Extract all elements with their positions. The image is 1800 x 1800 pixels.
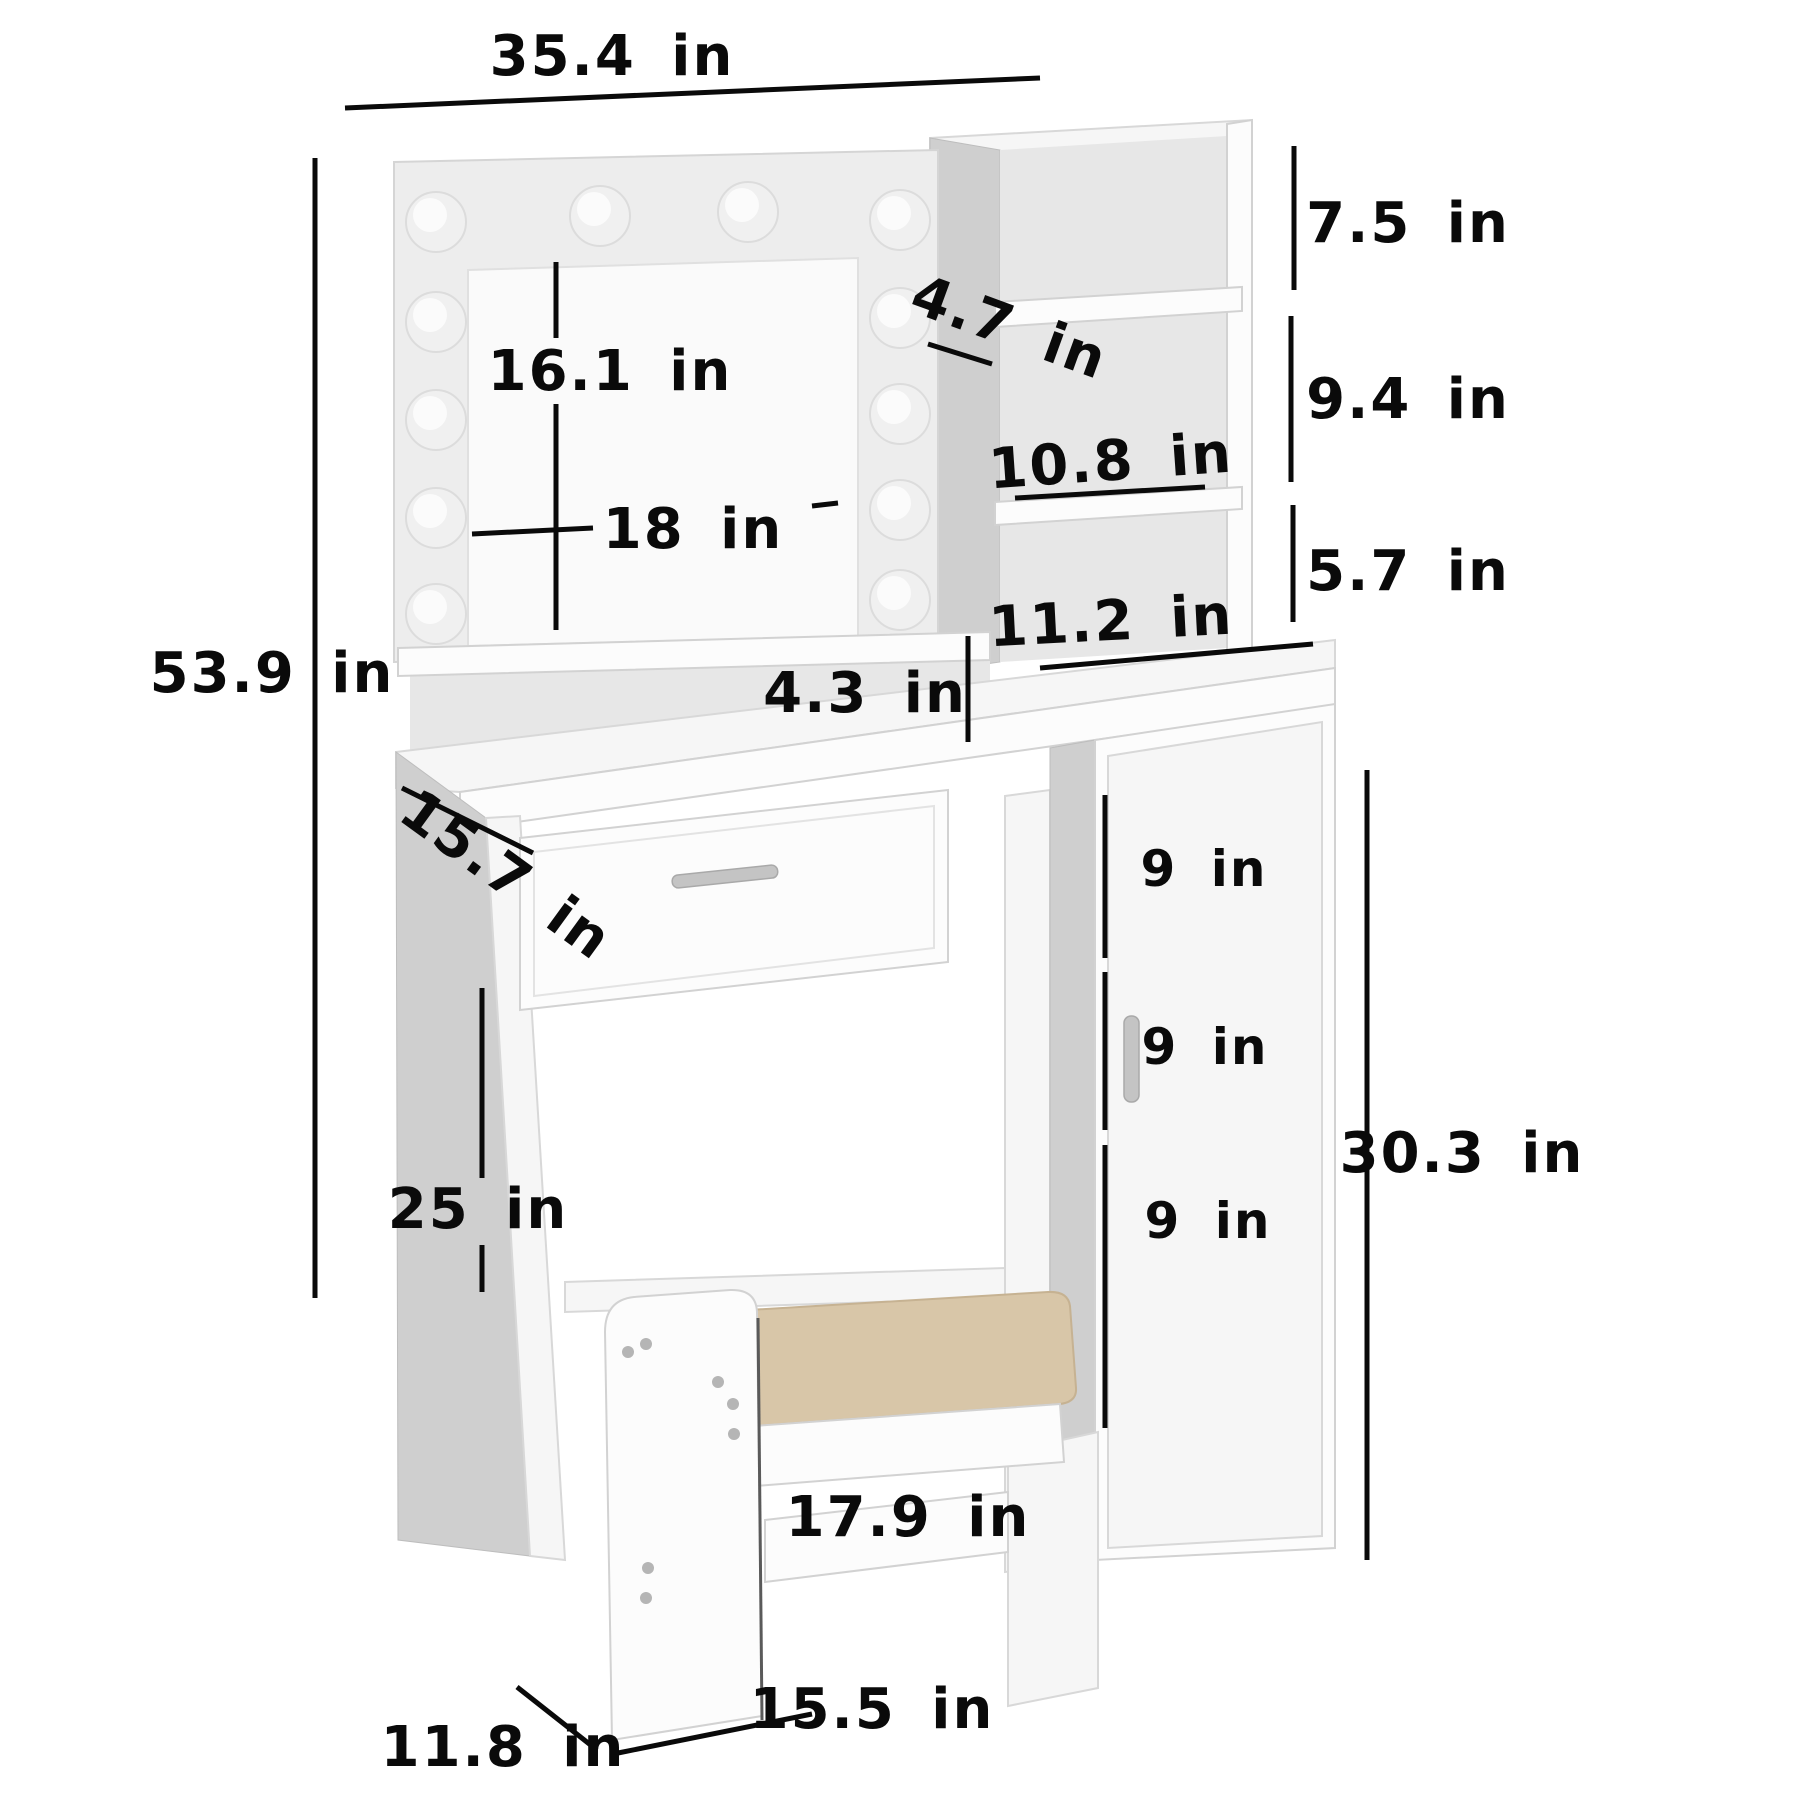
light-bulb-icon bbox=[406, 488, 466, 548]
lighted-mirror bbox=[394, 150, 938, 662]
light-bulb-icon bbox=[406, 390, 466, 450]
desktop-shelf-height-label: 4.3 in bbox=[763, 661, 967, 726]
light-bulb-icon bbox=[870, 570, 930, 630]
dim-line-mirror-width-dash bbox=[812, 503, 838, 506]
overall-height-label: 53.9 in bbox=[150, 641, 395, 706]
mirror-glass bbox=[468, 258, 858, 646]
stool-seat-width-label: 17.9 in bbox=[786, 1485, 1031, 1550]
light-bulb-icon bbox=[718, 182, 778, 242]
hutch-left-wall bbox=[930, 138, 1000, 672]
light-bulb-icon bbox=[870, 190, 930, 250]
cabinet-door-handle bbox=[1124, 1016, 1139, 1102]
mirror-height-label: 16.1 in bbox=[488, 339, 733, 404]
upper-cubby-height-label: 7.5 in bbox=[1306, 191, 1510, 256]
knee-space-height-label: 25 in bbox=[388, 1177, 569, 1242]
cabinet-top-width-label: 11.2 in bbox=[987, 583, 1235, 661]
stool-base-depth-label: 11.8 in bbox=[381, 1715, 626, 1780]
diagram-canvas: 35.4 in 53.9 in 16.1 in 18 in 4.7 in 7.5… bbox=[0, 0, 1800, 1800]
lower-cubby-height-label: 5.7 in bbox=[1306, 539, 1510, 604]
light-bulb-icon bbox=[406, 292, 466, 352]
light-bulb-icon bbox=[870, 384, 930, 444]
product-dimension-diagram: 35.4 in 53.9 in 16.1 in 18 in 4.7 in 7.5… bbox=[0, 0, 1800, 1800]
light-bulb-icon bbox=[406, 584, 466, 644]
cabinet-section-bottom-label: 9 in bbox=[1145, 1192, 1272, 1250]
cabinet-section-middle-label: 9 in bbox=[1142, 1018, 1269, 1076]
hutch-back-panel bbox=[1000, 136, 1227, 662]
mirror-width-label: 18 in bbox=[603, 497, 784, 562]
cabinet-height-label: 30.3 in bbox=[1340, 1121, 1585, 1186]
cabinet-section-top-label: 9 in bbox=[1141, 840, 1268, 898]
light-bulb-icon bbox=[870, 480, 930, 540]
stool-base-width-label: 15.5 in bbox=[750, 1677, 995, 1742]
light-bulb-icon bbox=[570, 186, 630, 246]
middle-cubby-height-label: 9.4 in bbox=[1306, 367, 1510, 432]
stool-right-leg bbox=[1008, 1432, 1098, 1706]
overall-width-label: 35.4 in bbox=[490, 24, 735, 89]
light-bulb-icon bbox=[406, 192, 466, 252]
hutch-right-wall bbox=[1227, 120, 1252, 652]
